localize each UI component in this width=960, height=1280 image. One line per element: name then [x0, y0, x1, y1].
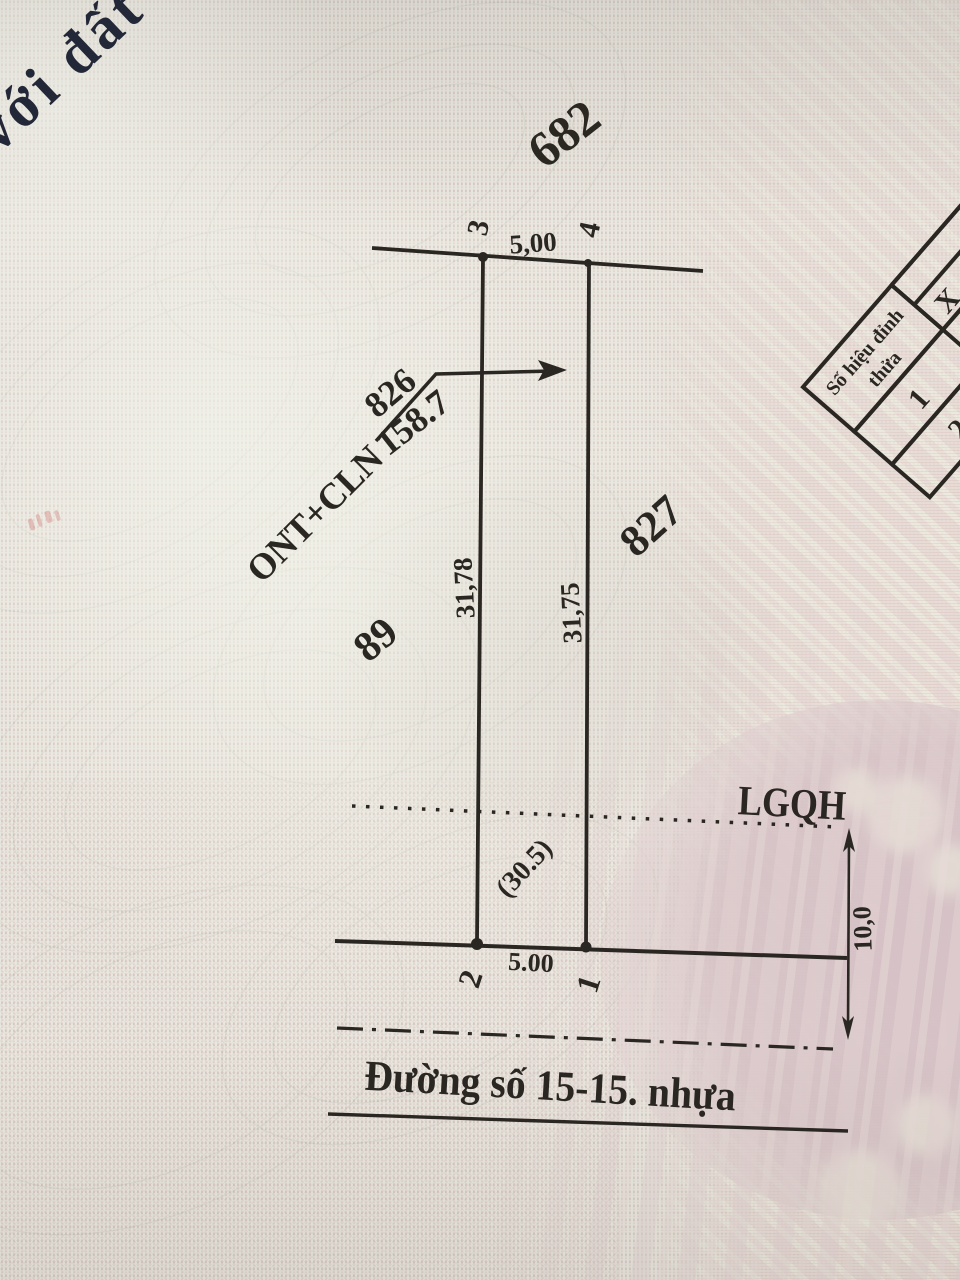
svg-text:31,78: 31,78 — [447, 557, 480, 619]
svg-text:5,00: 5,00 — [508, 226, 557, 259]
svg-text:31,75: 31,75 — [554, 582, 587, 644]
svg-text:5.00: 5.00 — [507, 947, 554, 978]
svg-text:LGQH: LGQH — [737, 778, 847, 830]
svg-text:10,0: 10,0 — [847, 906, 878, 952]
